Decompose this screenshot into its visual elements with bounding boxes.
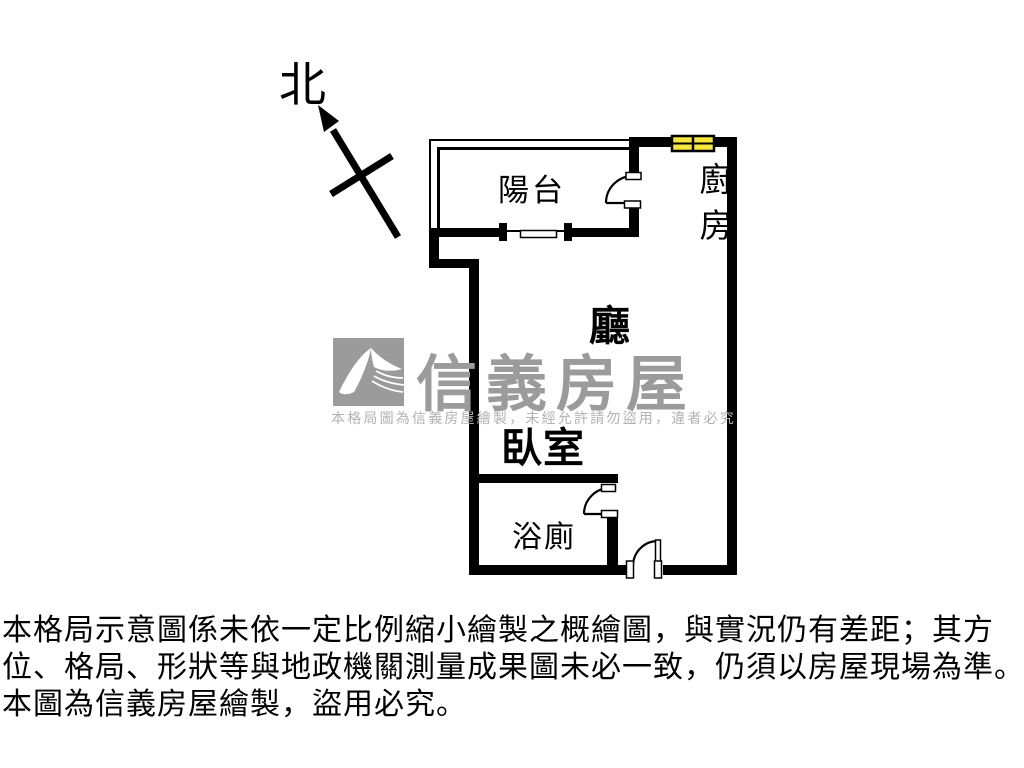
disclaimer-line-1: 本格局示意圖係未依一定比例縮小繪製之概繪圖，與實況仍有差距；其方	[2, 612, 1024, 649]
disclaimer-text: 本格局示意圖係未依一定比例縮小繪製之概繪圖，與實況仍有差距；其方 位、格局、形狀…	[2, 612, 1024, 723]
balcony-door	[606, 173, 641, 209]
kitchen-window	[672, 136, 714, 151]
balcony-label: 陽台	[498, 165, 566, 210]
bathroom-label: 浴廁	[512, 512, 576, 556]
floorplan-page: 北 陽台 廚房 廳 臥室 浴廁 信義房屋 本格局圖為信義房屋繪製，未經允許請勿盜…	[0, 0, 1024, 768]
entrance-door	[627, 540, 662, 578]
bathroom-door	[584, 485, 618, 518]
watermark-notice: 本格局圖為信義房屋繪製，未經允許請勿盜用，違者必究	[331, 408, 736, 428]
north-label: 北	[279, 46, 326, 115]
disclaimer-line-2: 位、格局、形狀等與地政機關測量成果圖未必一致，仍須以房屋現場為準。	[2, 649, 1024, 686]
kitchen-label: 廚房	[688, 162, 736, 254]
disclaimer-line-3: 本圖為信義房屋繪製，盜用必究。	[2, 686, 1024, 723]
living-room-window	[499, 223, 572, 241]
sinyi-logo-icon	[333, 338, 404, 406]
north-arrow-icon	[318, 105, 398, 237]
